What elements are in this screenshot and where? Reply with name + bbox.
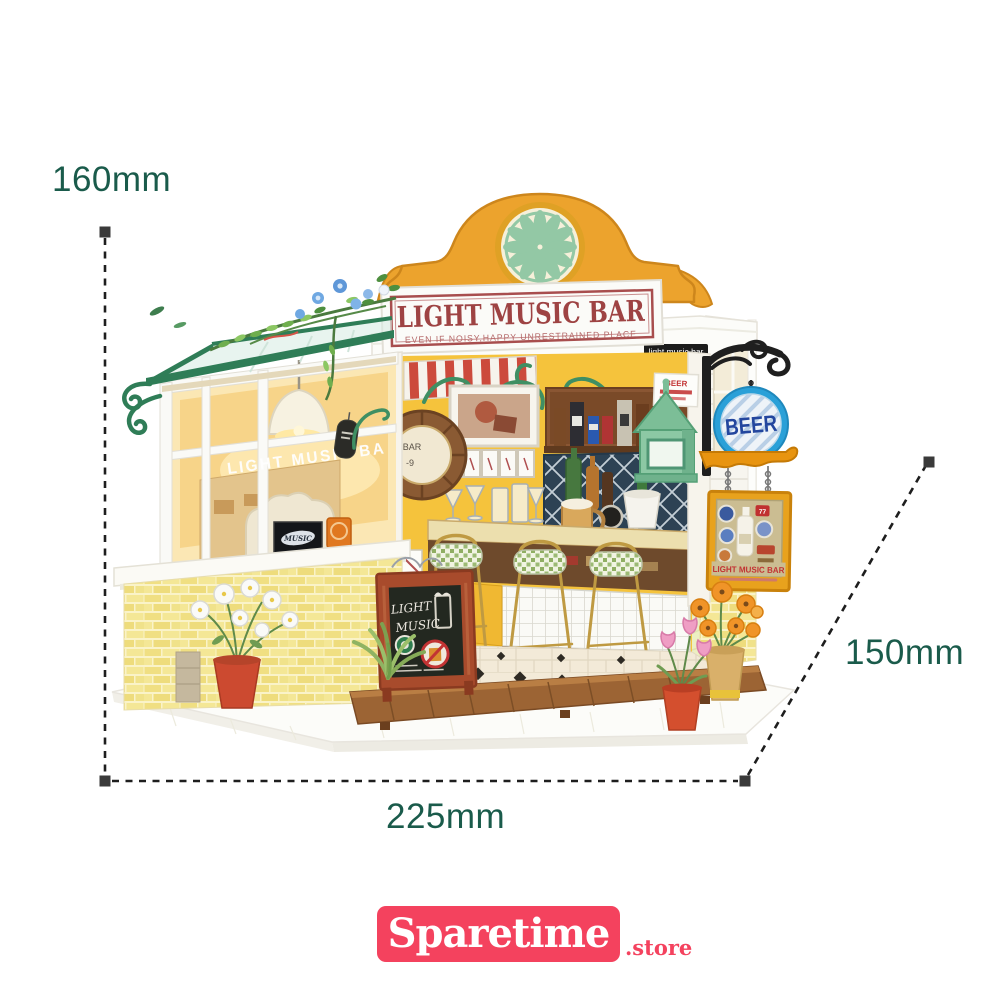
badge-77: 77: [759, 509, 767, 516]
awning-hooks: [124, 384, 160, 433]
rosette-window: [498, 205, 582, 289]
store-logo: Sparetime .store: [377, 906, 692, 962]
svg-text:MUSIC: MUSIC: [283, 534, 312, 543]
logo-store-name: Sparetime: [388, 914, 610, 954]
height-dimension-label: 160mm: [52, 160, 171, 200]
depth-dimension-label: 150mm: [845, 633, 964, 673]
product-dimension-image: light music bar LIGHT MUSIC BAR EVEN IF …: [0, 0, 1000, 1000]
logo-pill: Sparetime: [377, 906, 620, 962]
chalkboard-sign: LIGHT MUSIC: [376, 556, 477, 702]
beer-hanging-sign: BEER: [714, 387, 788, 461]
main-signboard: LIGHT MUSIC BAR EVEN IF NOISY,HAPPY UNRE…: [381, 280, 663, 354]
corner-marker: [100, 776, 111, 787]
signboard-title: LIGHT MUSIC BAR: [396, 294, 646, 334]
width-dimension-label: 225mm: [386, 797, 505, 837]
beer-sign-text: BEER: [724, 410, 778, 440]
floating-leaves: [149, 305, 187, 330]
logo-store-suffix: .store: [625, 937, 692, 962]
side-hanging-sign: 77 LIGHT MUSIC BAR: [707, 491, 791, 590]
hanging-sign-title: LIGHT MUSIC BAR: [712, 564, 784, 575]
miniature-bar-scene: light music bar LIGHT MUSIC BAR EVEN IF …: [0, 0, 1000, 1000]
depth-top-marker: [924, 457, 935, 468]
orange-poster: [327, 518, 351, 548]
clock-label-bottom: -9: [406, 458, 414, 468]
clock-label-top: BAR: [403, 442, 422, 452]
height-top-marker: [100, 227, 111, 238]
width-end-marker: [740, 776, 751, 787]
